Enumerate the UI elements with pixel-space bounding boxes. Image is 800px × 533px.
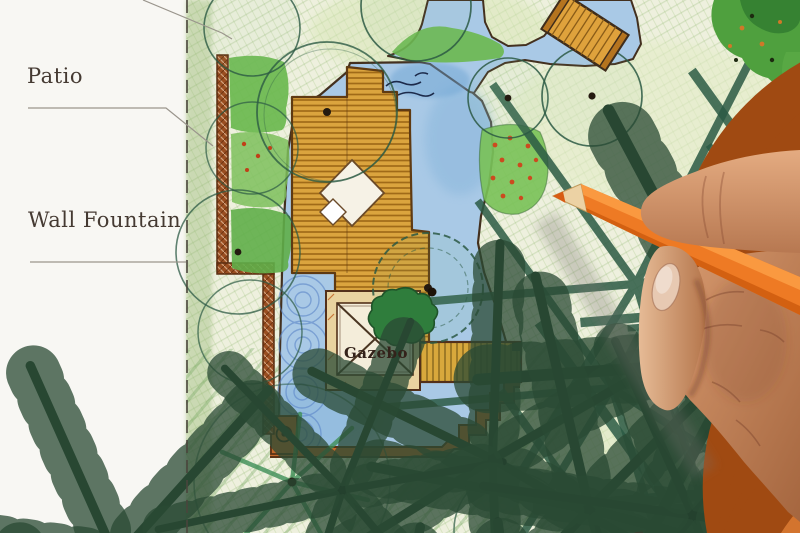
wall-fountain-label: Wall Fountain [28, 208, 181, 232]
gazebo-label: Gazebo [338, 344, 414, 362]
landscape-plan-drawing [0, 0, 800, 533]
patio-label: Patio [27, 64, 83, 88]
photo-of-landscape-plan: Patio Wall Fountain Gazebo [0, 0, 800, 533]
